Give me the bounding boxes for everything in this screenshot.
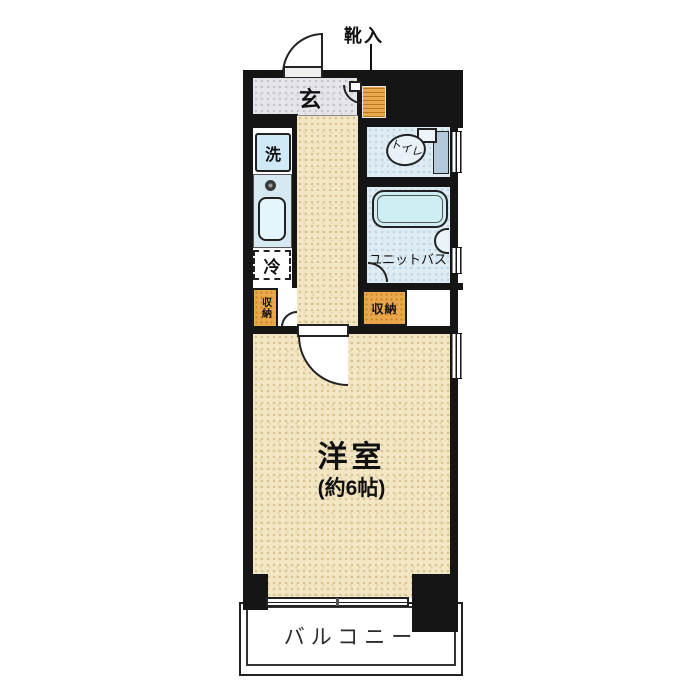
room-window-icon xyxy=(451,333,462,379)
hallway xyxy=(297,115,358,334)
hallway-step-line xyxy=(297,115,358,116)
pillar-bottom-right xyxy=(412,574,458,632)
storage-left-label: 収納 xyxy=(258,297,273,319)
kitchen-sink-icon xyxy=(258,197,286,241)
refrigerator-box: 冷 xyxy=(253,250,291,280)
storage-right-label: 収納 xyxy=(371,300,397,317)
burner-icon xyxy=(265,180,276,191)
window-center-stile xyxy=(336,598,339,606)
entrance-step-wall xyxy=(253,114,298,128)
storage-left-box: 収納 xyxy=(252,288,278,328)
washer-label: 洗 xyxy=(265,141,281,165)
bathtub-icon xyxy=(372,190,448,228)
wall-bottom-left-block xyxy=(243,574,268,610)
room-name-label: 洋室 xyxy=(253,437,450,471)
unit-bath-label: ユニットバス xyxy=(366,250,450,266)
wall-below-bath xyxy=(358,283,463,290)
shoe-storage-box xyxy=(362,86,386,118)
wall-room-top-right xyxy=(348,326,450,334)
shoe-storage-label: 靴入 xyxy=(344,22,384,48)
balcony-label: バルコニー xyxy=(284,621,419,651)
storage-right-box: 収納 xyxy=(362,290,407,326)
refrigerator-label: 冷 xyxy=(264,253,281,278)
toilet-window-icon xyxy=(451,131,462,173)
wall-toilet-bath xyxy=(367,177,450,187)
wall-room-top-left xyxy=(253,326,297,334)
bath-window-icon xyxy=(451,247,462,274)
room-door-leaf-icon xyxy=(297,324,349,337)
washer-box: 洗 xyxy=(255,133,291,172)
storage-right-front xyxy=(407,290,450,326)
floorplan: 靴入 玄 洗 冷 トイレ ユニットバス xyxy=(0,0,700,700)
room-size-label: (約6帖) xyxy=(253,474,450,500)
entrance-label: 玄 xyxy=(292,82,328,114)
